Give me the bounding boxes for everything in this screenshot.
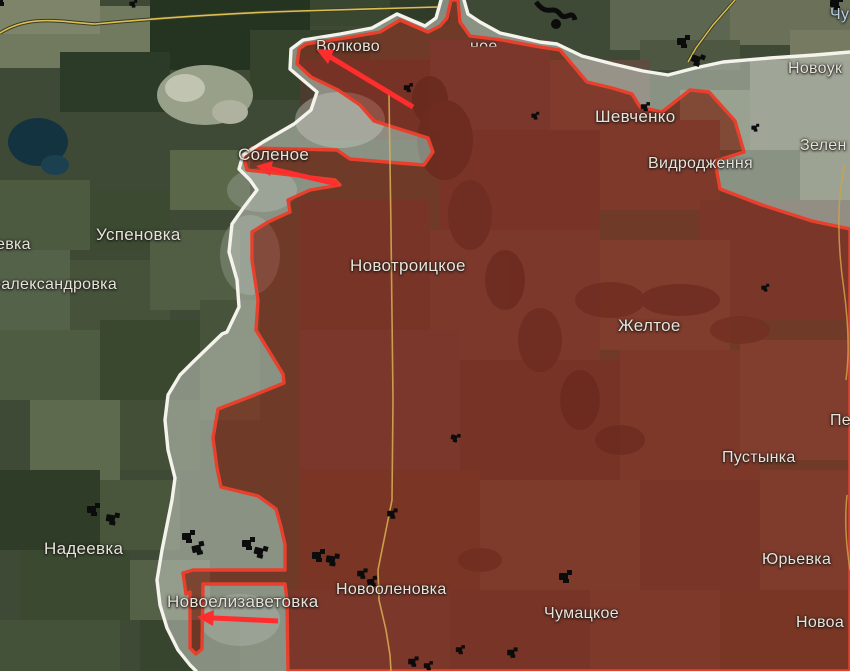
label-pe: Пе	[830, 412, 850, 430]
label-chu: Чу	[830, 6, 849, 24]
label-pustynka: Пустынка	[722, 449, 796, 467]
label-uspenovka: Успеновка	[96, 226, 181, 245]
label-novoelizavetovka: Новоелизаветовка	[167, 593, 318, 612]
label-zheltoe: Желтое	[618, 317, 681, 336]
label-shevchenko: Шевченко	[595, 108, 676, 127]
label-novouk: Новоук	[788, 60, 842, 78]
label-vidrodzhennia: Видродження	[648, 155, 753, 173]
label-raleksandrovka: ралександровка	[0, 276, 117, 294]
label-nadeevka: Надеевка	[44, 540, 123, 559]
label-yurievka: Юрьевка	[762, 551, 831, 569]
label-zelen: Зелен	[800, 137, 847, 155]
label-chumatskoe: Чумацкое	[544, 605, 619, 623]
label-novoa: Новоа	[796, 614, 844, 632]
label-novotroitskoe: Новотроицкое	[350, 257, 466, 276]
label-solenoe: Соленое	[238, 146, 309, 165]
map-canvas[interactable]: Волково ное Чу Новоук Шевченко Зелен Сол…	[0, 0, 850, 671]
label-volkovo: Волково	[316, 38, 380, 56]
map-base-layer	[0, 0, 850, 671]
label-evka: евка	[0, 236, 31, 254]
label-novoolenovka: Новооленовка	[336, 581, 447, 599]
